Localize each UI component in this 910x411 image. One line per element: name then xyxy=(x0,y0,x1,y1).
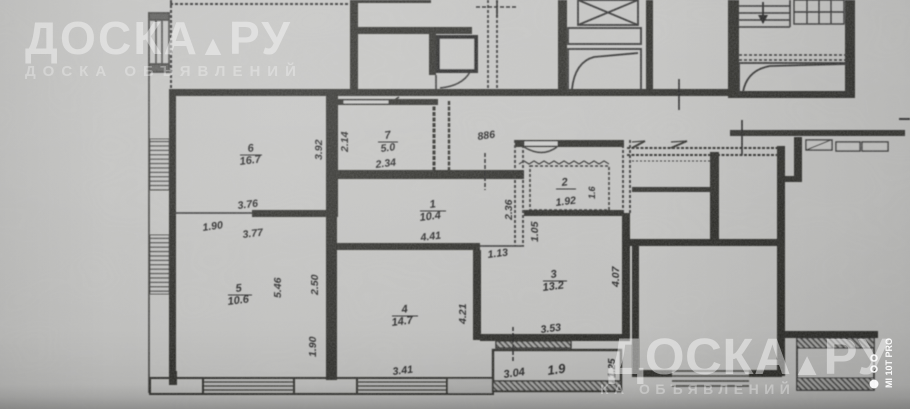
svg-text:MI 10T PRO: MI 10T PRO xyxy=(884,338,894,388)
